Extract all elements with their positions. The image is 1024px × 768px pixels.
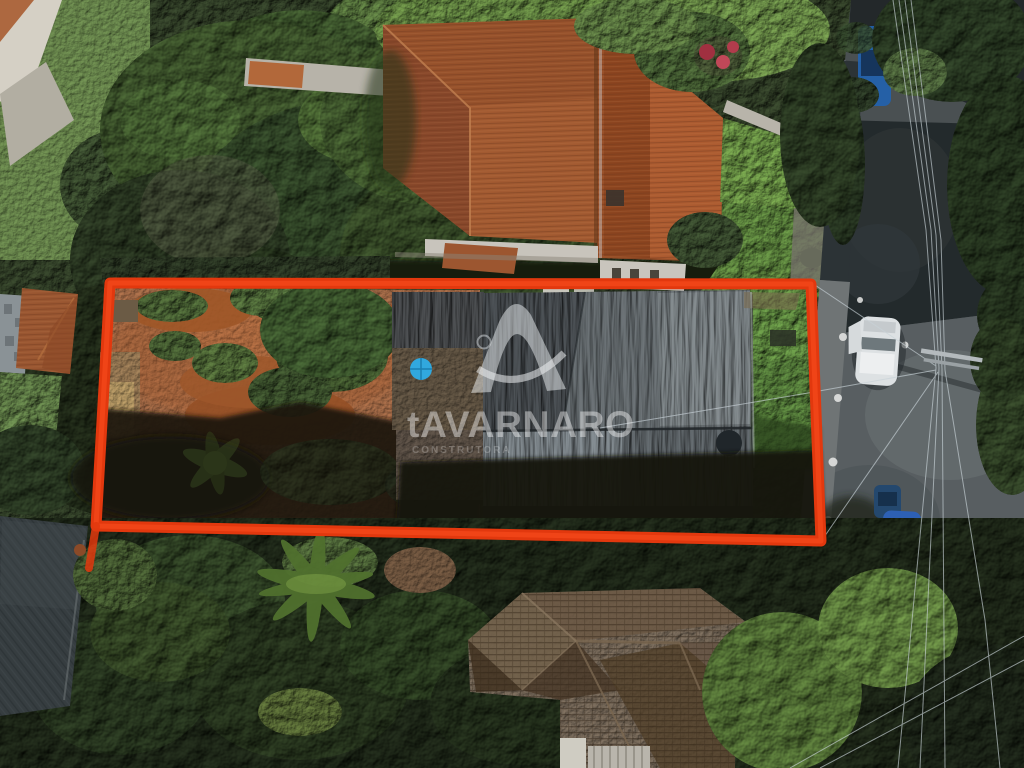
svg-text:tAVARNARO: tAVARNARO	[407, 404, 635, 445]
svg-text:CONSTRUTORA: CONSTRUTORA	[412, 445, 512, 456]
